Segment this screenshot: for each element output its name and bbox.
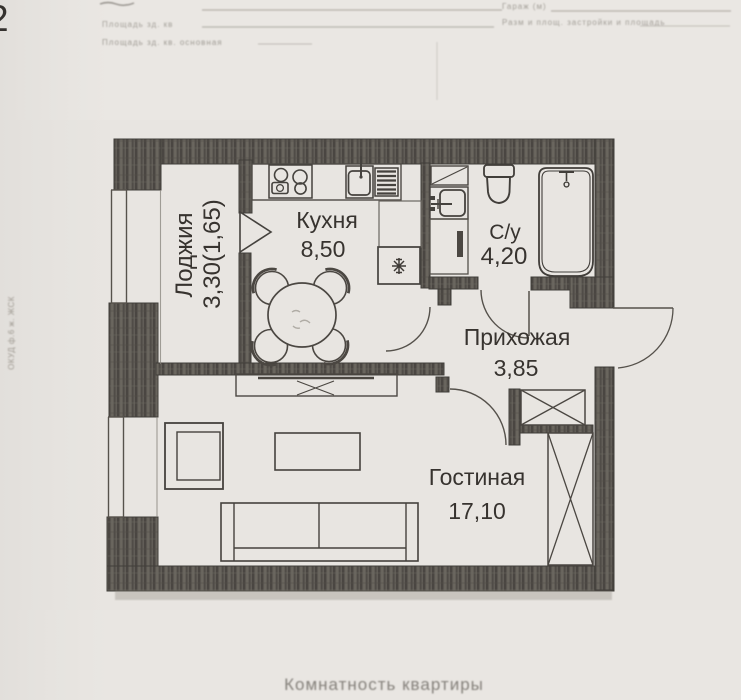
svg-text:Гараж (м): Гараж (м) xyxy=(502,2,547,11)
svg-text:Комнатность квартиры: Комнатность квартиры xyxy=(284,675,484,694)
svg-text:2: 2 xyxy=(0,0,9,39)
svg-text:3,85: 3,85 xyxy=(494,355,539,381)
svg-text:Кухня: Кухня xyxy=(296,207,358,233)
svg-text:Гостиная: Гостиная xyxy=(429,464,526,490)
svg-text:Лоджия: Лоджия xyxy=(171,212,198,297)
svg-text:Площадь зд. кв. основная: Площадь зд. кв. основная xyxy=(102,38,223,47)
svg-text:Прихожая: Прихожая xyxy=(464,324,571,350)
svg-text:4,20: 4,20 xyxy=(481,243,528,270)
svg-text:Площадь зд. кв: Площадь зд. кв xyxy=(102,20,173,29)
svg-text:ОКУД ф.6 ж. ЖСК: ОКУД ф.6 ж. ЖСК xyxy=(7,296,16,370)
svg-text:3,30(1,65): 3,30(1,65) xyxy=(199,199,226,308)
svg-text:С/у: С/у xyxy=(489,221,521,244)
svg-text:8,50: 8,50 xyxy=(301,236,346,262)
svg-text:17,10: 17,10 xyxy=(448,498,506,524)
